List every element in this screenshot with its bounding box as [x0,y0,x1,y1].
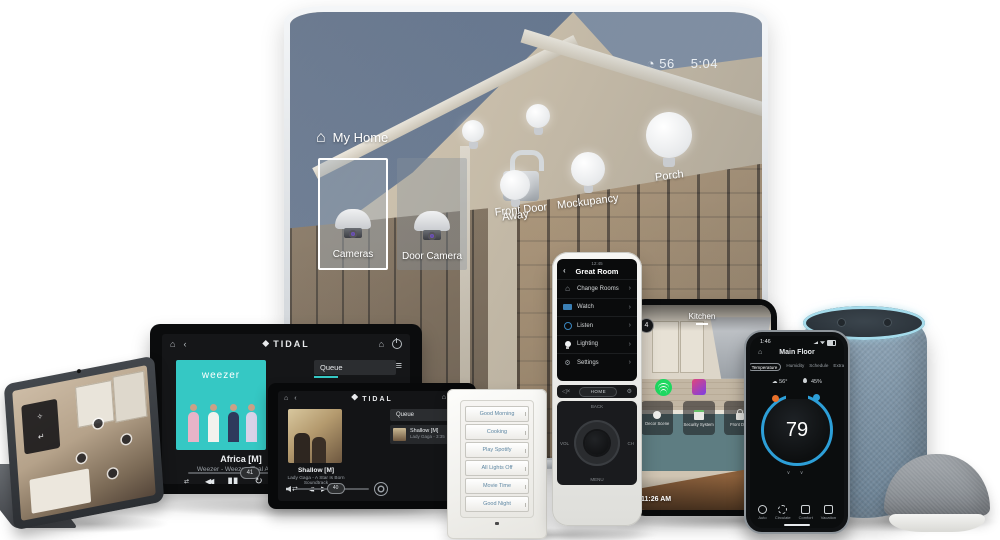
keypad-plate: Good Morning Cooking Play Spotify All Li… [460,400,534,518]
shortcut-label: Security System [684,422,714,427]
album-art-weezer-teal: weezer [176,360,266,450]
remote-menu-watch[interactable]: Watch › [557,298,637,317]
google-home-mini [884,454,990,532]
keypad-sensor [495,522,499,525]
hamburger-icon[interactable]: ≡ [396,360,402,372]
device-hotspot[interactable] [122,434,132,445]
tab-schedule[interactable]: Schedule [809,363,828,371]
echo-button [883,318,892,327]
dpad-ch-button[interactable]: CH [628,441,635,446]
home-indicator[interactable] [784,524,810,526]
bulb-porch[interactable]: Porch [636,112,702,182]
vacation-icon [824,505,833,514]
back-icon[interactable]: ‹ [563,266,566,275]
lock-icon [510,150,544,171]
tab-humidity[interactable]: Humidity [786,363,804,371]
dome-camera-icon [333,209,373,241]
phone-screen: 1:46 ⌂ Main Floor Temperature Humidity S… [750,336,844,528]
bulb-mockupancy[interactable]: Mockupancy [548,152,628,208]
bulb-icon [565,341,571,347]
volume-value: 40 [327,483,345,494]
wall-keypad: Good Morning Cooking Play Spotify All Li… [447,389,547,539]
kitchen-clock: 11:26 AM [641,496,671,503]
phone-clock: 1:46 [760,339,771,345]
volume-slider[interactable]: 40 [296,488,369,490]
queue-tab-underline [314,376,338,378]
tile-cameras[interactable]: Cameras [318,158,388,270]
remote-room-title: ‹ Great Room [557,267,637,276]
mini-fabric-dome [884,454,990,516]
nav-comfort[interactable]: Comfort [799,505,813,521]
dome-camera-icon [412,211,452,243]
smart-remote: 12:45 ‹ Great Room ⌂ Change Rooms › Watc… [552,252,642,526]
tablet-body: ✧ ↵ [4,356,165,531]
spotify-icon[interactable] [655,379,672,396]
pause-icon[interactable]: ▮▮ [227,476,238,484]
nav-label: Auto [758,515,766,520]
tidal-screen: ⌂ ‹ TIDAL ⌂ Shallow [M] Lady Gaga - A St… [278,391,466,501]
battery-icon [827,340,836,346]
queue-label: Queue [396,412,414,418]
shortcut-security-system[interactable]: Security System [683,401,715,435]
mute-icon[interactable]: ◁× [562,388,570,395]
lock-icon [736,413,744,420]
queue-tab[interactable]: Queue [314,360,396,375]
menu-label: Lighting [577,341,598,347]
comfort-icon [801,505,810,514]
volume-row: 40 [286,482,388,496]
setpoint-value: 79 [764,397,830,463]
home-icon[interactable]: ⌂ [758,349,762,356]
thermostat-bottom-nav: Auto Circulate Comfort Vacation [750,505,844,521]
keypad-button-label: Good Morning [480,411,515,417]
phone-title-bar: ⌂ Main Floor [750,349,844,356]
menu-label: Change Rooms [577,286,619,292]
listen-icon [564,322,572,330]
cloud-icon: ☁ [772,379,778,385]
temperature-icon: ◔ [647,56,655,71]
nav-vacation[interactable]: Vacation [821,505,836,521]
home-icon: ⌂ [316,133,326,143]
dpad-menu-button[interactable]: MENU [557,477,637,482]
security-panel-icon [694,410,704,420]
camera-dot [77,369,81,374]
album-figure [188,412,199,442]
keypad-button-good-night[interactable]: Good Night [465,496,529,512]
keypad-button-movie-time[interactable]: Movie Time [465,478,529,494]
home-icon: ⌂ [563,284,572,293]
album-figure [294,433,310,463]
tablet-screen-room-view: ✧ ↵ [12,365,156,521]
bulb-icon [526,104,550,135]
power-icon[interactable] [392,339,402,349]
humidity-value: 45% [811,379,822,385]
keypad-button-all-lights-off[interactable]: All Lights Off [465,460,529,476]
nav-circulate[interactable]: Circulate [775,505,791,521]
chevron-right-icon: › [629,285,631,292]
thermostat-dial[interactable]: 79 [761,394,833,466]
room-island [29,468,91,513]
album-art-a-star-is-born [288,409,342,463]
watch-icon [563,304,572,310]
tab-extras[interactable]: Extras [833,363,844,371]
keypad-button-good-morning[interactable]: Good Morning [465,406,529,422]
progress-value: 41 [240,467,260,479]
tidal-logo: TIDAL [278,394,466,403]
chevron-right-icon: › [629,341,631,348]
keypad-button-label: Cooking [487,429,507,435]
tablet-with-kickstand: ✧ ↵ [4,368,172,530]
keypad-button-label: Play Spotify [482,447,511,453]
keypad-button-label: All Lights Off [481,465,512,471]
nav-label: Comfort [799,515,813,520]
tile-label: Cameras [333,249,374,260]
gear-icon[interactable]: ⚙ [627,388,632,395]
keypad-button-label: Movie Time [483,483,511,489]
queue-meta: Lady Gaga - 3:35 [410,434,445,439]
bulb-icon [462,120,484,149]
album-art-title: weezer [202,370,240,381]
chevron-right-icon: › [629,359,631,366]
device-hotspot[interactable] [77,453,87,464]
album-figure [312,437,326,463]
album-figure [228,412,239,442]
home-icon[interactable]: ⌂ [379,339,384,349]
speaker-icon[interactable] [286,486,291,492]
thermostat-tabs: Temperature Humidity Schedule Extras [750,363,844,371]
tv-clock: 5:04 [691,56,718,71]
album-figure [246,412,257,442]
tile-label: Door Camera [402,251,462,262]
fan-icon [778,505,787,514]
song-title: Shallow [M] [280,467,352,474]
tv-home-label: My Home [333,130,389,145]
remote-home-button[interactable]: HOME [579,387,617,397]
product-lineup-scene: ◔ 56 5:04 ⌂ My Home Cameras [0,0,1000,540]
menu-label: Settings [577,360,599,366]
album-figure [208,412,219,442]
chevron-right-icon: › [629,304,631,311]
bulb-label: Away [501,208,529,223]
bulb-away[interactable]: Away [486,170,544,222]
gear-icon: ⚙ [563,359,572,367]
remote-clock: 12:45 [557,261,637,266]
device-hotspot[interactable] [108,468,118,479]
outdoor-temp: 56° [779,379,787,385]
auto-icon [758,505,767,514]
disc-icon[interactable] [374,482,388,496]
tv-outdoor-temp: 56 [659,56,674,71]
chevron-right-icon: › [629,322,631,329]
nav-label: Vacation [821,515,836,520]
keypad-button-cooking[interactable]: Cooking [465,424,529,440]
wifi-icon [820,341,825,344]
home-control-panel[interactable]: ✧ ↵ [21,398,59,454]
dpad-ring[interactable] [574,420,620,466]
echo-button [837,318,846,327]
bulb-label: Porch [654,168,684,183]
tidal-tablet-small: ⌂ ‹ TIDAL ⌂ Shallow [M] Lady Gaga - A St… [268,383,476,509]
tv-status-bar: ◔ 56 5:04 [647,56,718,71]
tab-temperature[interactable]: Temperature [750,363,781,371]
shuffle-icon[interactable]: ⇄ [184,478,189,484]
keypad-button-label: Good Night [483,501,511,507]
queue-label: Queue [320,363,343,372]
tv-breadcrumb: ⌂ My Home [316,130,388,145]
home-icon[interactable]: ⌂ [442,394,446,402]
device-hotspot[interactable] [93,418,103,429]
menu-label: Listen [577,323,593,329]
nav-label: Circulate [775,515,791,520]
remote-dpad: BACK MENU VOL CH [557,401,637,485]
signal-icon [813,341,818,344]
remote-menu-change-rooms[interactable]: ⌂ Change Rooms › [557,279,637,298]
mini-base [889,514,985,532]
shortcut-label: Decor Scene [645,421,669,426]
thermostat-phone: 1:46 ⌂ Main Floor Temperature Humidity S… [744,330,850,534]
remote-control-strip: ◁× HOME ⚙ [557,385,637,398]
tile-door-camera[interactable]: Door Camera [397,158,467,270]
keypad-button-play-spotify[interactable]: Play Spotify [465,442,529,458]
nav-auto[interactable]: Auto [758,505,767,521]
bulb-icon [653,411,661,419]
previous-icon[interactable]: ◀◀ [205,477,211,484]
remote-menu-settings[interactable]: ⚙ Settings › [557,353,637,372]
thermostat-stats: ☁ 56° 45% [750,378,844,385]
tidal-logo: TIDAL [162,339,410,349]
panel-icon: ↵ [38,431,45,441]
droplet-icon [803,378,807,383]
dpad-back-button[interactable]: BACK [557,404,637,409]
media-app-icon[interactable] [692,379,706,395]
dpad-ok-button[interactable] [585,431,609,455]
phone-status-icons [813,340,836,346]
remote-screen: 12:45 ‹ Great Room ⌂ Change Rooms › Watc… [557,259,637,381]
remote-menu-listen[interactable]: Listen › [557,316,637,335]
room-cabinet [112,371,147,423]
phone-title: Main Floor [779,349,814,356]
panel-icon: ✧ [36,412,43,422]
remote-menu-lighting[interactable]: Lighting › [557,335,637,354]
menu-label: Watch [577,304,594,310]
shortcut-decor-scene[interactable]: Decor Scene [641,401,673,435]
kitchen-title: Kitchen [633,312,771,325]
queue-thumbnail [393,428,406,441]
dpad-vol-button[interactable]: VOL [560,441,569,446]
dial-adjust-arrows[interactable]: ∨ ∨ [750,470,844,476]
